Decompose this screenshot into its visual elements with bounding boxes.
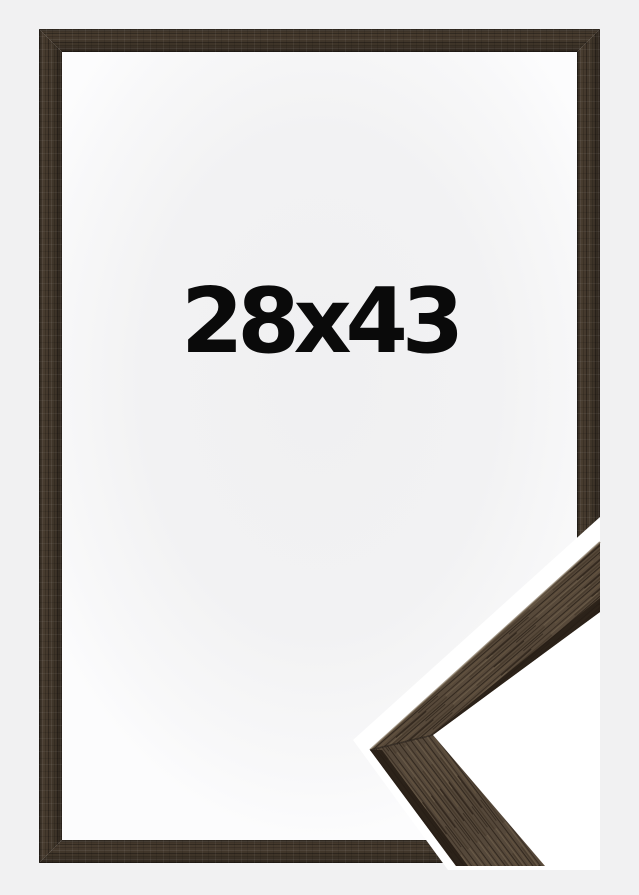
frame-product-photo: 28x43: [0, 0, 639, 895]
corner-sample-photo: [0, 0, 639, 895]
